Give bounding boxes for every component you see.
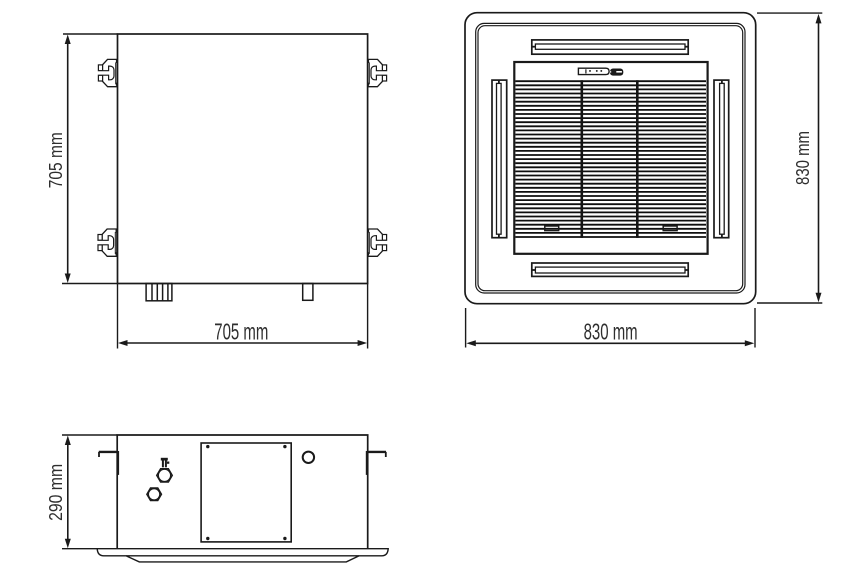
svg-text:705 mm: 705 mm bbox=[214, 319, 268, 345]
svg-text:830 mm: 830 mm bbox=[792, 131, 813, 185]
svg-text:830 mm: 830 mm bbox=[584, 319, 638, 345]
svg-text:705 mm: 705 mm bbox=[45, 132, 66, 188]
svg-text:290 mm: 290 mm bbox=[45, 464, 66, 521]
